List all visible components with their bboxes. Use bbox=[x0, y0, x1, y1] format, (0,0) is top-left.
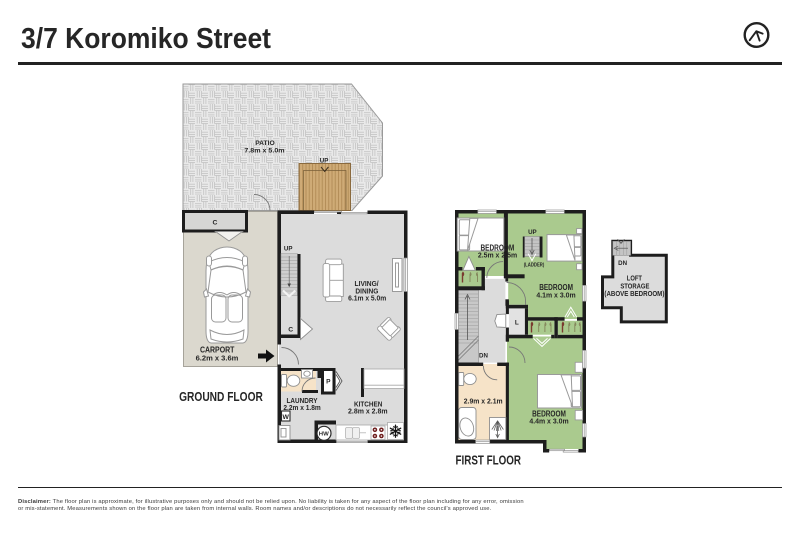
svg-text:(ABOVE BEDROOM): (ABOVE BEDROOM) bbox=[604, 289, 664, 298]
svg-text:P: P bbox=[326, 379, 331, 386]
svg-text:4.1m x 3.0m: 4.1m x 3.0m bbox=[536, 290, 576, 299]
svg-text:C: C bbox=[213, 219, 218, 226]
svg-text:2.5m x 2.5m: 2.5m x 2.5m bbox=[478, 251, 518, 260]
svg-text:DN: DN bbox=[479, 352, 488, 359]
svg-text:W: W bbox=[283, 415, 290, 421]
svg-text:3/7 Koromiko Street: 3/7 Koromiko Street bbox=[21, 23, 271, 55]
svg-text:2.8m x 2.8m: 2.8m x 2.8m bbox=[348, 406, 388, 415]
svg-text:FIRST FLOOR: FIRST FLOOR bbox=[456, 453, 522, 468]
svg-text:6.2m x 3.6m: 6.2m x 3.6m bbox=[196, 354, 239, 363]
svg-text:2.9m x 2.1m: 2.9m x 2.1m bbox=[464, 396, 503, 405]
svg-text:HW: HW bbox=[319, 432, 330, 438]
svg-text:L: L bbox=[515, 319, 519, 326]
svg-text:PATIO: PATIO bbox=[255, 140, 275, 147]
svg-text:GROUND FLOOR: GROUND FLOOR bbox=[179, 389, 263, 404]
svg-text:4.4m x 3.0m: 4.4m x 3.0m bbox=[529, 416, 569, 425]
svg-text:(LADDER): (LADDER) bbox=[524, 262, 545, 268]
svg-text:7.8m x 5.0m: 7.8m x 5.0m bbox=[244, 147, 284, 154]
svg-text:6.1m x 5.0m: 6.1m x 5.0m bbox=[348, 294, 387, 303]
svg-text:UP: UP bbox=[528, 229, 537, 236]
svg-text:C: C bbox=[288, 327, 293, 334]
svg-text:DN: DN bbox=[618, 260, 627, 267]
svg-text:UP: UP bbox=[284, 246, 293, 253]
svg-text:UP: UP bbox=[320, 158, 329, 165]
